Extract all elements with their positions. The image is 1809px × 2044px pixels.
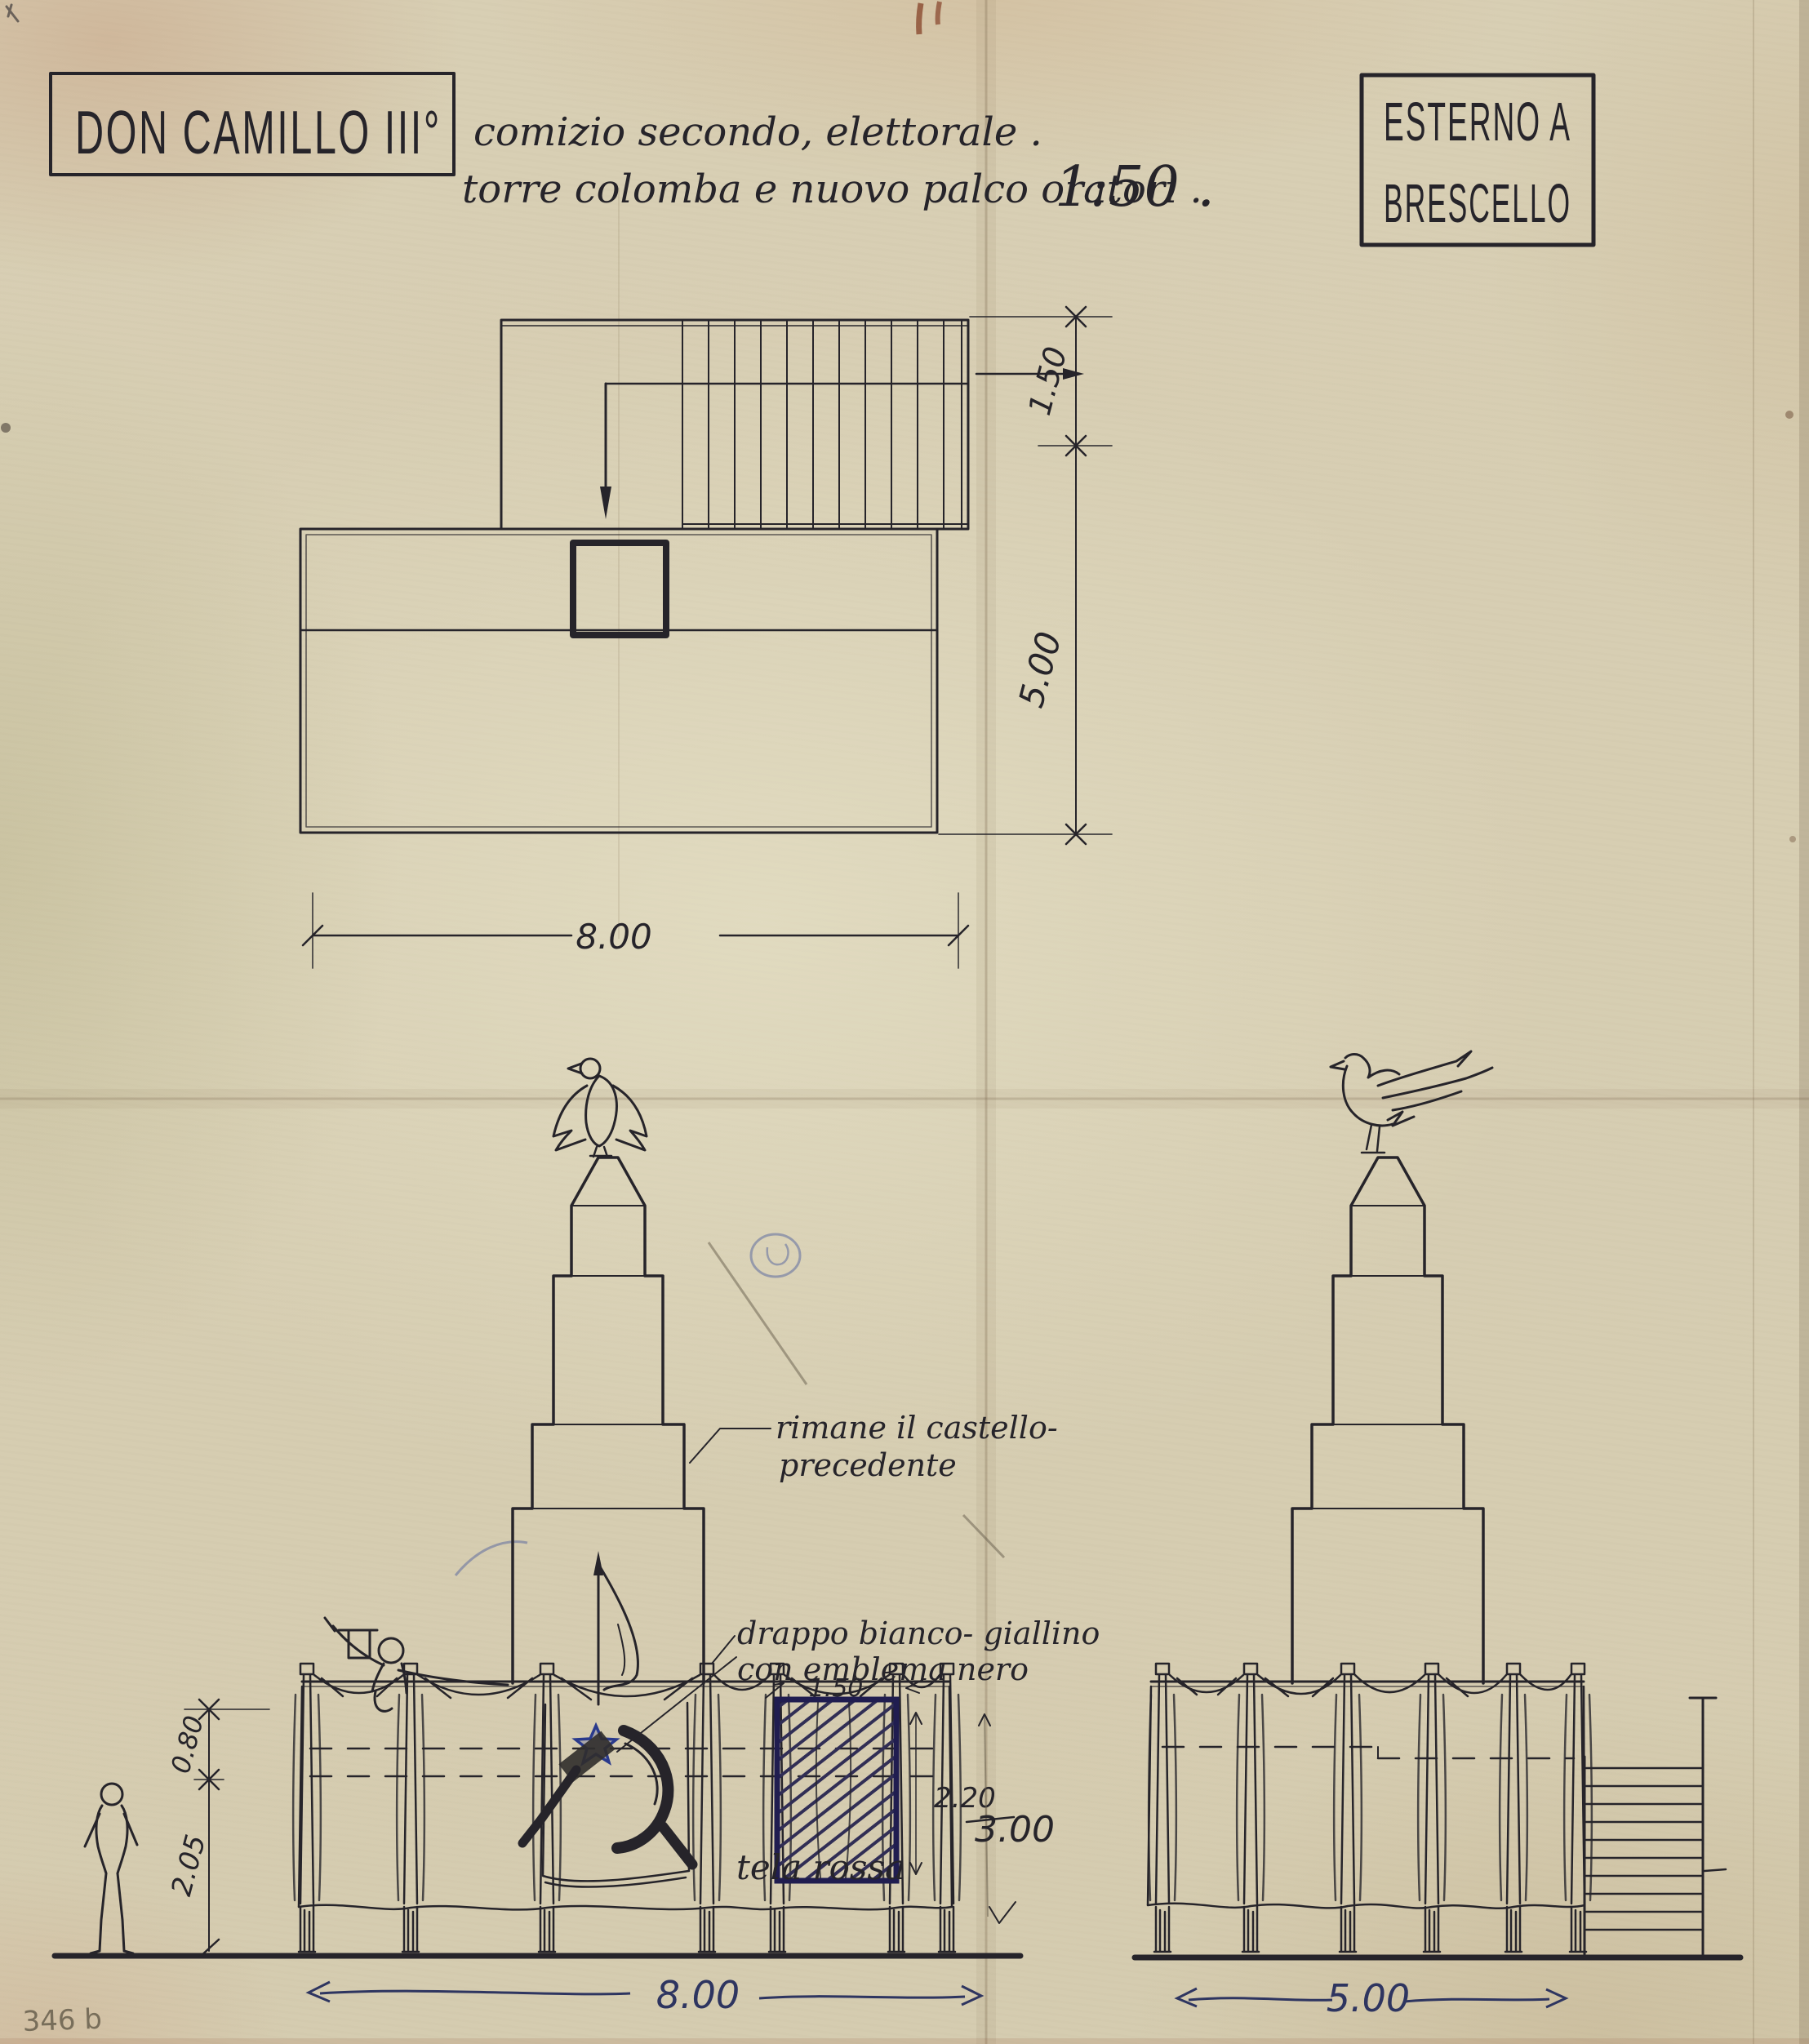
tower-note: rimane il castello- precedente	[690, 1410, 1058, 1483]
scanned-drawing-sheet: { "colors": { "paper": "#d8cfb4", "ink":…	[0, 0, 1809, 2044]
scale-note: 1:50 .	[1055, 155, 1215, 220]
subtitle-line1: comizio secondo, elettorale .	[473, 109, 1042, 155]
tower-note-line1: rimane il castello-	[776, 1410, 1058, 1446]
stage-height-label: 2.05	[165, 1831, 212, 1899]
skirt-bottom-edge	[299, 1905, 952, 1910]
archive-corner-mark: 346 b	[22, 2003, 103, 2038]
title-block: DON CAMILLO III°	[51, 73, 454, 175]
plan-stair-depth-label: 1.50	[1021, 343, 1073, 419]
curtain-post	[1564, 1664, 1592, 1952]
side-width-label: 5.00	[1327, 1976, 1410, 2020]
plan-entry-arrow	[600, 384, 611, 519]
front-elevation: rimane il castello- precedente drappo bi…	[55, 1059, 1100, 2017]
side-platform	[1148, 1664, 1592, 1952]
front-width-label: 8.00	[656, 1973, 740, 2017]
side-tower	[1292, 1158, 1483, 1683]
plan-depth-dimension: 1.50 5.00	[939, 307, 1112, 844]
hammer-sickle-icon	[522, 1731, 692, 1864]
scale-figure	[85, 1784, 137, 1953]
stamp-line2: BRESCELLO	[1384, 172, 1571, 233]
banner-note-line2: con emblema nero	[737, 1651, 1029, 1687]
front-width-dimension: 8.00	[309, 1973, 981, 2017]
drawing-canvas: DON CAMILLO III° comizio secondo, eletto…	[0, 0, 1809, 2044]
sheet-title: DON CAMILLO III°	[75, 98, 442, 167]
plan-width-dimension: 8.00	[303, 893, 968, 968]
plan-width-label: 8.00	[576, 917, 652, 957]
drape-width-label: 1.50	[809, 1674, 864, 1703]
pencil-doodles	[456, 1234, 1004, 1575]
emblem-banner	[522, 1703, 692, 1887]
skirt-cloth-note: tela rossa	[736, 1847, 905, 1887]
plan-depth-label: 5.00	[1011, 628, 1069, 712]
location-stamp: ESTERNO A BRESCELLO	[1362, 75, 1593, 245]
curtain-post	[1149, 1664, 1176, 1952]
tower-note-line2: precedente	[779, 1447, 957, 1483]
side-elevation: 5.00	[1135, 1051, 1740, 2020]
paper-fold-lines	[0, 0, 1809, 2044]
plan-stair	[606, 320, 968, 529]
curtain-post	[293, 1664, 321, 1952]
subtitle-notes: comizio secondo, elettorale . torre colo…	[462, 109, 1215, 220]
access-ladder	[1585, 1698, 1726, 1954]
front-tower	[513, 1158, 704, 1683]
stamp-line1: ESTERNO A	[1384, 91, 1571, 152]
banner-note-line1: drappo bianco- giallino	[737, 1615, 1100, 1651]
curtain-post	[1237, 1664, 1265, 1952]
left-height-dimensions: 0.80 2.05	[165, 1700, 269, 1957]
side-width-dimension: 5.00	[1177, 1976, 1566, 2020]
parapet-height-label: 0.80	[165, 1713, 210, 1777]
overall-height-label: 3.00	[975, 1809, 1055, 1851]
